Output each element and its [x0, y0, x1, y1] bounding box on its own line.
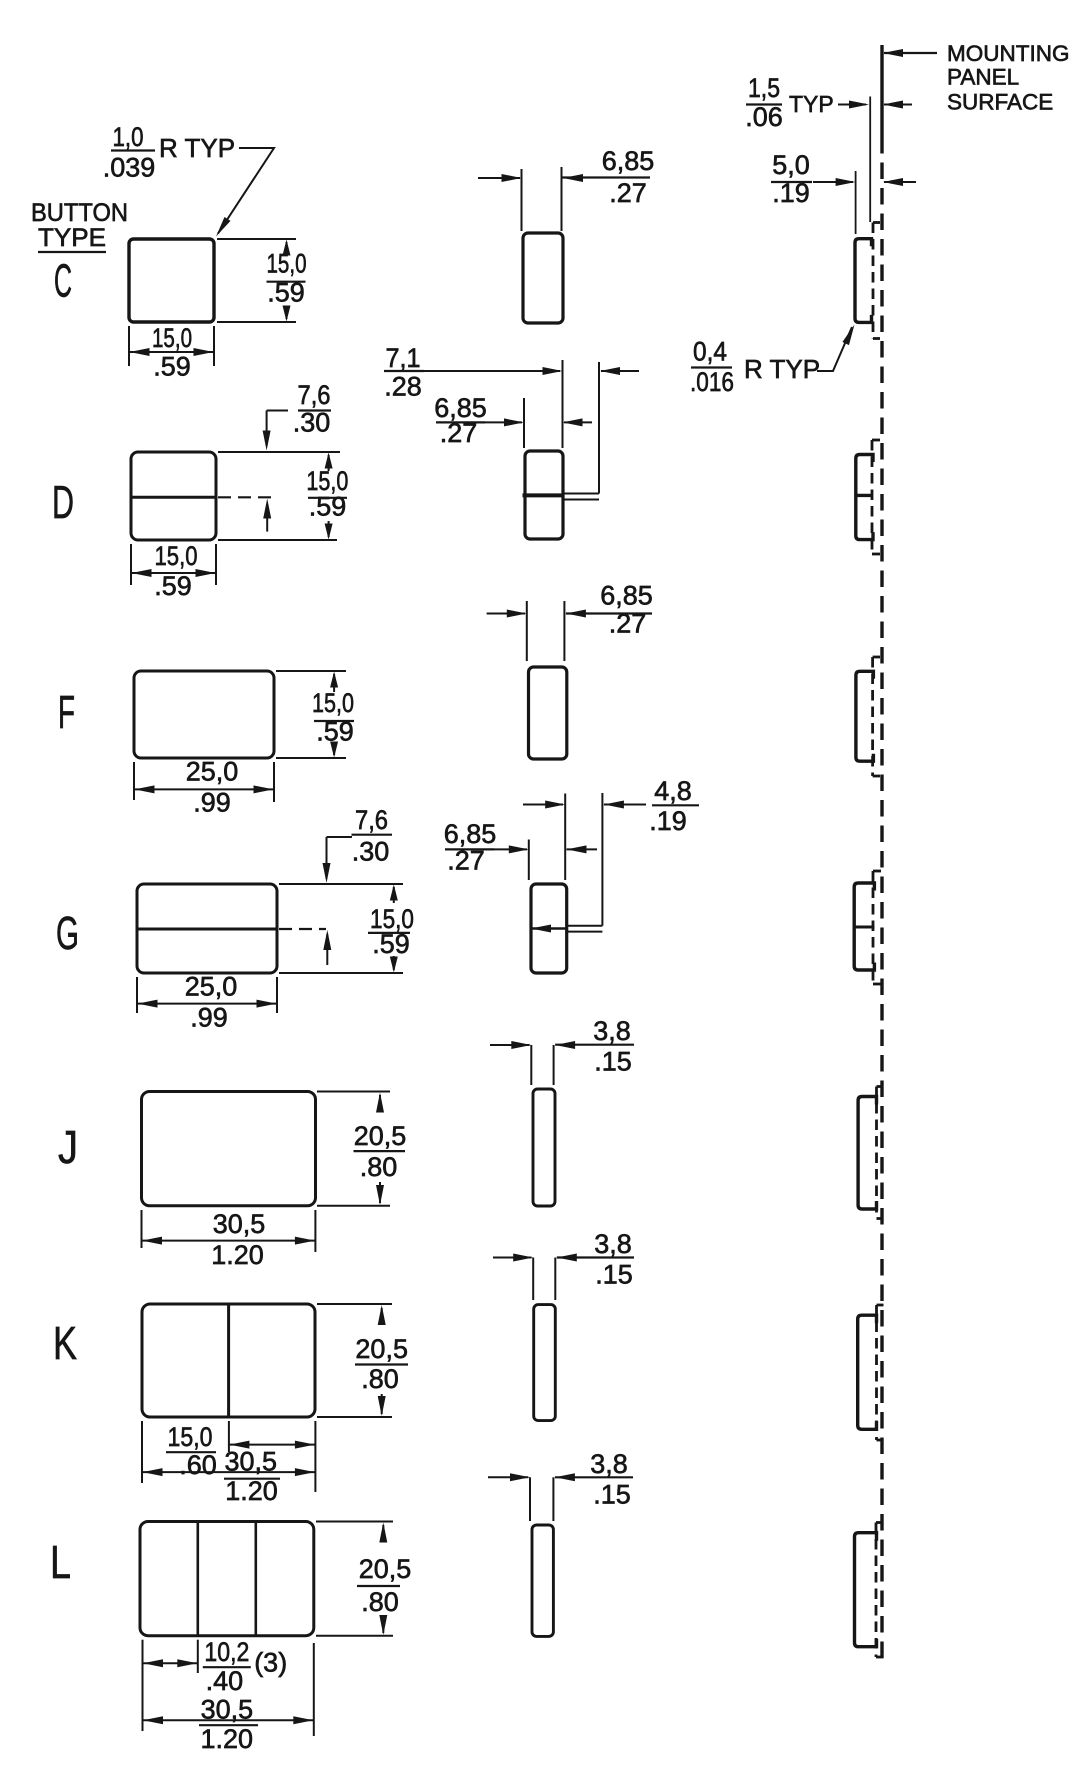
svg-text:4,8: 4,8 — [654, 776, 692, 806]
svg-text:F: F — [58, 686, 75, 738]
svg-text:3,8: 3,8 — [593, 1016, 631, 1046]
svg-text:.99: .99 — [193, 788, 231, 818]
svg-text:.016: .016 — [690, 367, 734, 397]
svg-text:.19: .19 — [649, 806, 687, 836]
svg-text:.15: .15 — [593, 1480, 631, 1510]
svg-text:6,85: 6,85 — [602, 146, 655, 176]
svg-text:BUTTON: BUTTON — [31, 199, 128, 227]
svg-text:15,0: 15,0 — [152, 323, 192, 353]
svg-text:TYP: TYP — [789, 91, 834, 117]
svg-text:.40: .40 — [206, 1666, 244, 1696]
svg-text:.80: .80 — [360, 1152, 398, 1182]
svg-text:7,6: 7,6 — [355, 805, 388, 835]
svg-text:.06: .06 — [745, 102, 783, 132]
svg-text:25,0: 25,0 — [185, 972, 238, 1002]
svg-text:R TYP: R TYP — [159, 133, 235, 163]
svg-text:SURFACE: SURFACE — [947, 90, 1053, 115]
svg-text:G: G — [56, 907, 79, 959]
svg-text:7,1: 7,1 — [386, 343, 421, 373]
svg-text:3,8: 3,8 — [590, 1449, 628, 1479]
svg-text:.59: .59 — [372, 929, 410, 959]
svg-text:.80: .80 — [361, 1587, 399, 1617]
svg-text:R TYP: R TYP — [744, 354, 820, 384]
svg-text:.27: .27 — [440, 418, 478, 448]
svg-text:.60: .60 — [179, 1450, 217, 1480]
svg-text:7,6: 7,6 — [298, 380, 331, 410]
svg-text:L: L — [50, 1536, 71, 1588]
svg-text:25,0: 25,0 — [186, 757, 239, 787]
svg-text:.30: .30 — [293, 408, 331, 438]
svg-text:TYPE: TYPE — [38, 224, 106, 252]
svg-text:0,4: 0,4 — [693, 337, 727, 367]
svg-text:.59: .59 — [153, 352, 191, 382]
svg-text:6,85: 6,85 — [444, 819, 497, 849]
svg-text:J: J — [58, 1121, 78, 1173]
svg-text:15,0: 15,0 — [267, 249, 307, 279]
svg-text:.15: .15 — [595, 1260, 633, 1290]
svg-text:MOUNTING: MOUNTING — [947, 41, 1070, 66]
svg-text:30,5: 30,5 — [213, 1209, 266, 1239]
svg-text:.59: .59 — [154, 571, 192, 601]
svg-text:20,5: 20,5 — [355, 1334, 408, 1364]
svg-text:.28: .28 — [384, 372, 422, 402]
svg-text:10,2: 10,2 — [204, 1637, 249, 1667]
svg-text:.27: .27 — [609, 178, 647, 208]
svg-text:1.20: 1.20 — [201, 1724, 254, 1754]
svg-text:15,0: 15,0 — [168, 1422, 213, 1452]
svg-text:30,5: 30,5 — [225, 1447, 278, 1477]
svg-text:.15: .15 — [594, 1047, 632, 1077]
svg-text:1.20: 1.20 — [225, 1476, 278, 1506]
svg-text:.80: .80 — [361, 1364, 399, 1394]
svg-text:.19: .19 — [772, 178, 810, 208]
svg-text:15,0: 15,0 — [312, 688, 354, 718]
svg-text:.27: .27 — [609, 609, 647, 639]
svg-text:.039: .039 — [103, 153, 156, 183]
svg-text:.59: .59 — [267, 278, 305, 308]
svg-text:K: K — [53, 1317, 77, 1369]
svg-text:D: D — [52, 476, 74, 528]
svg-text:.30: .30 — [352, 837, 390, 867]
svg-text:1.20: 1.20 — [211, 1240, 264, 1270]
svg-text:.59: .59 — [309, 492, 347, 522]
svg-text:20,5: 20,5 — [354, 1121, 407, 1151]
svg-text:5,0: 5,0 — [772, 150, 810, 180]
svg-text:1,0: 1,0 — [113, 122, 144, 152]
svg-text:1,5: 1,5 — [748, 73, 780, 103]
svg-text:30,5: 30,5 — [201, 1695, 254, 1725]
svg-text:C: C — [54, 255, 72, 307]
svg-text:.27: .27 — [447, 846, 485, 876]
svg-text:(3): (3) — [254, 1648, 287, 1678]
svg-text:6,85: 6,85 — [600, 581, 653, 611]
svg-text:20,5: 20,5 — [359, 1554, 412, 1584]
svg-text:15,0: 15,0 — [155, 541, 198, 571]
svg-text:.99: .99 — [190, 1003, 228, 1033]
svg-text:PANEL: PANEL — [947, 65, 1019, 90]
svg-text:3,8: 3,8 — [594, 1229, 632, 1259]
